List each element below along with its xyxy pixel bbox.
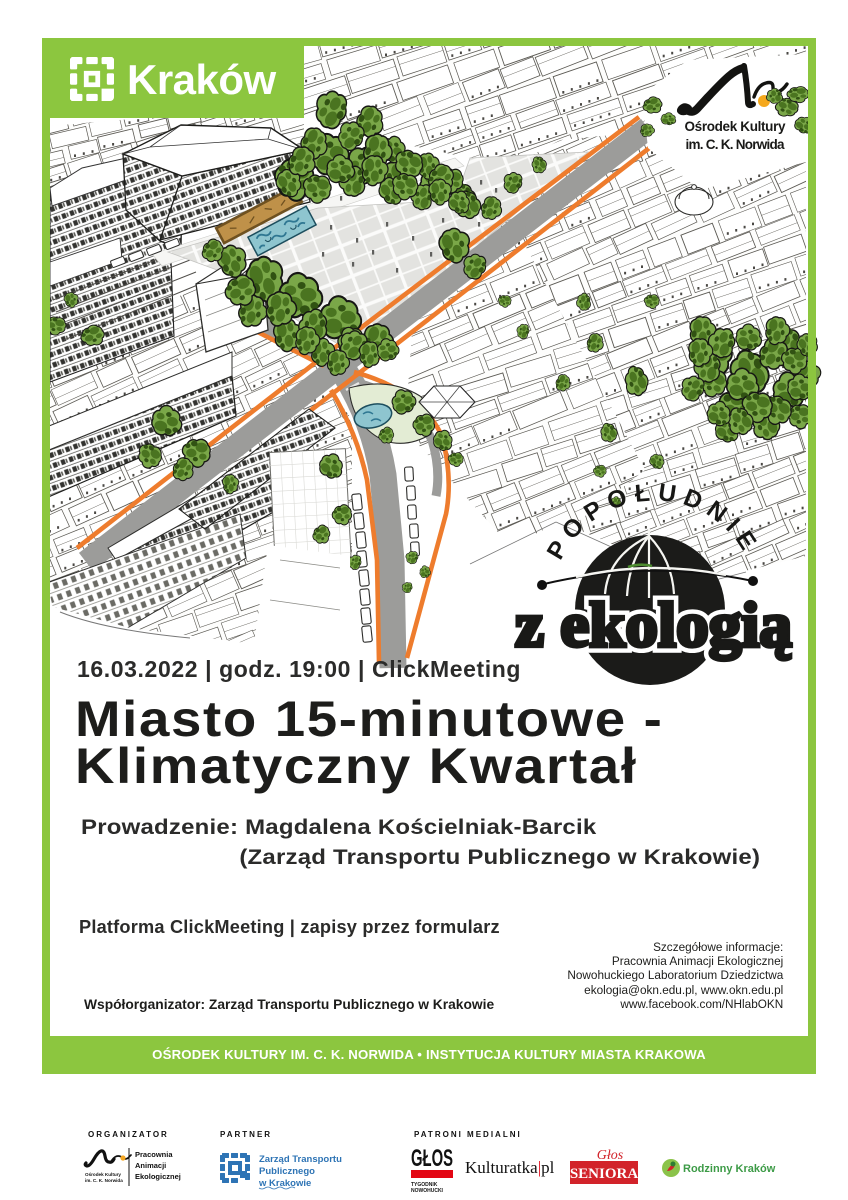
svg-text:Ośrodek Kultury: Ośrodek Kultury <box>85 1172 121 1177</box>
svg-text:Pracownia: Pracownia <box>135 1150 173 1159</box>
svg-text:Publicznego: Publicznego <box>259 1166 315 1177</box>
svg-text:im. C. K. Norwida: im. C. K. Norwida <box>85 1178 123 1183</box>
svg-text:Rodzinny Kraków: Rodzinny Kraków <box>683 1163 776 1175</box>
svg-text:Ekologicznej: Ekologicznej <box>135 1172 181 1181</box>
svg-text:Zarząd Transportu: Zarząd Transportu <box>259 1154 342 1165</box>
svg-text:Animacji: Animacji <box>135 1161 166 1170</box>
svg-text:Głos: Głos <box>597 1148 624 1163</box>
svg-text:SENIORA: SENIORA <box>570 1166 638 1182</box>
svg-text:NOWOHUCKI: NOWOHUCKI <box>411 1188 444 1194</box>
svg-text:GŁOS: GŁOS <box>411 1146 453 1172</box>
